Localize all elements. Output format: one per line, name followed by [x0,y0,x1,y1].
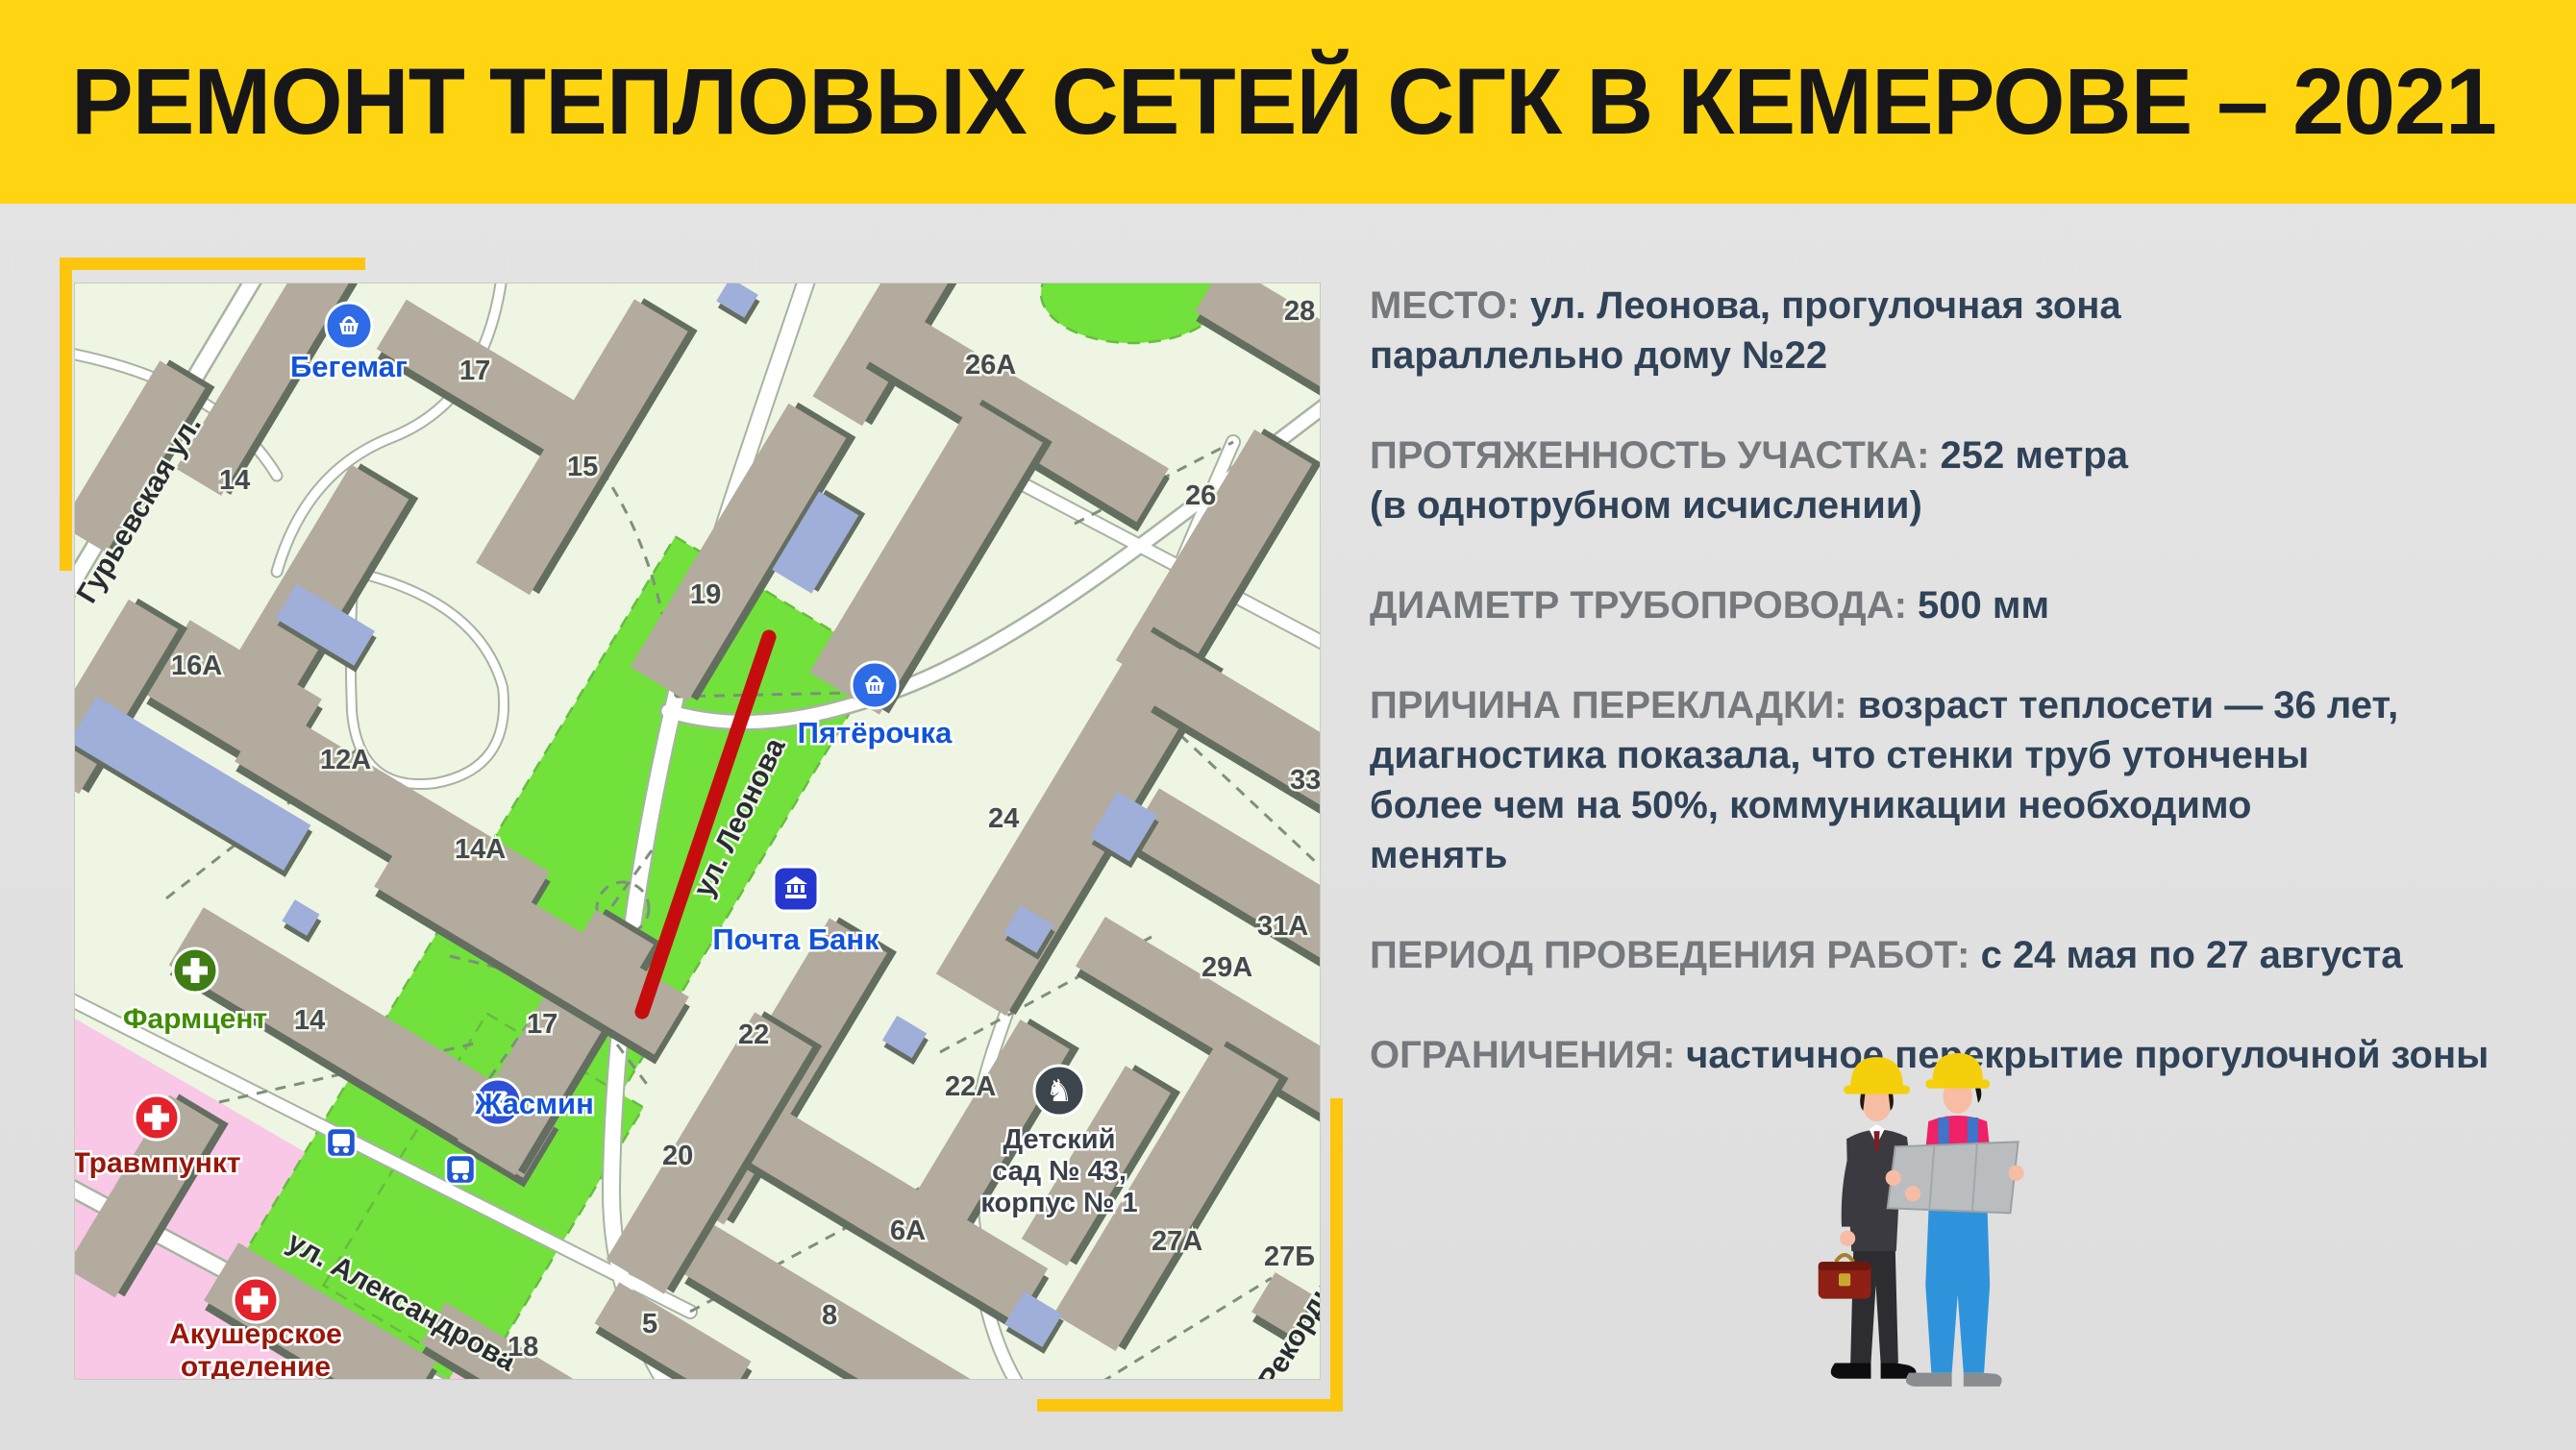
pyaterochka-icon [852,662,898,708]
svg-text:14А: 14А [455,834,506,865]
detsad-icon: ♞ [1034,1066,1084,1116]
poi-label-detsad-3: корпус № 1 [980,1188,1137,1218]
map-canvas: ♞ Бегемаг Пятёрочка Почта Банк Фармцент … [75,283,1320,1379]
svg-text:27Б: 27Б [1264,1241,1315,1272]
svg-text:31А: 31А [1257,911,1308,942]
page-title: РЕМОНТ ТЕПЛОВЫХ СЕТЕЙ СГК В КЕМЕРОВЕ – 2… [0,48,2496,156]
farmcent-icon [173,948,217,993]
title-banner: РЕМОНТ ТЕПЛОВЫХ СЕТЕЙ СГК В КЕМЕРОВЕ – 2… [0,0,2576,204]
worker-figure [1886,1053,2024,1387]
infographic-root: РЕМОНТ ТЕПЛОВЫХ СЕТЕЙ СГК В КЕМЕРОВЕ – 2… [0,0,2576,1450]
poi-label-pochta-bank: Почта Банк [712,922,879,956]
poi-label-akusherskoe-2: отделение [181,1351,331,1379]
begemag-icon [326,303,372,349]
svg-text:18: 18 [508,1332,538,1363]
svg-text:5: 5 [642,1309,657,1339]
poi-label-pyaterochka: Пятёрочка [798,716,953,750]
info-block-length: ПРОТЯЖЕННОСТЬ УЧАСТКА: 252 метра (в одно… [1370,430,2562,530]
svg-text:22: 22 [738,1020,769,1050]
bus-stop-icon [327,1128,356,1157]
svg-text:24: 24 [988,803,1019,834]
map-bracket-topleft-h [60,258,365,270]
svg-text:28: 28 [1284,296,1315,327]
svg-text:14: 14 [294,1005,325,1036]
poi-label-detsad-2: сад № 43, [992,1156,1127,1187]
workers-illustration [1786,1049,2030,1395]
info-block-place: МЕСТО: ул. Леонова, прогулочная зона пар… [1370,281,2562,381]
map-bracket-topleft-v [60,258,72,571]
map-bracket-bottomright-h [1037,1399,1343,1412]
pochta-bank-icon [774,867,818,911]
svg-text:♞: ♞ [1046,1073,1074,1108]
poi-label-farmcent: Фармцент [123,1003,267,1035]
svg-text:6А: 6А [890,1216,926,1246]
akusherskoe-icon [234,1278,278,1322]
travmpunkt-icon [135,1095,179,1140]
poi-label-travmpunkt: Травмпункт [75,1147,241,1179]
info-block-reason: ПРИЧИНА ПЕРЕКЛАДКИ: возраст теплосети — … [1370,680,2562,880]
svg-text:22А: 22А [945,1071,996,1102]
svg-text:20: 20 [662,1141,693,1171]
svg-text:33А: 33А [1290,765,1320,796]
svg-text:16А: 16А [171,651,222,681]
poi-label-akusherskoe-1: Акушерское [169,1318,342,1350]
city-map: ♞ Бегемаг Пятёрочка Почта Банк Фармцент … [75,283,1320,1379]
svg-text:27А: 27А [1152,1226,1202,1257]
svg-text:14: 14 [219,465,250,496]
poi-label-begemag: Бегемаг [290,350,408,383]
bus-stop-icon [446,1155,475,1184]
svg-text:26А: 26А [965,350,1016,381]
svg-text:17: 17 [527,1009,557,1040]
svg-text:29А: 29А [1201,952,1252,983]
engineer-figure [1819,1057,1917,1379]
map-bracket-bottomright-v [1330,1098,1343,1412]
poi-label-detsad-1: Детский [1003,1124,1116,1155]
blueprint-sheet [1888,1142,2019,1213]
svg-text:26: 26 [1185,480,1216,511]
poi-label-zhasmin: Жасмин [474,1087,594,1120]
svg-text:8: 8 [822,1300,837,1331]
svg-text:19: 19 [690,579,721,610]
svg-text:15: 15 [567,452,598,482]
info-block-period: ПЕРИОД ПРОВЕДЕНИЯ РАБОТ: с 24 мая по 27 … [1370,930,2562,980]
info-block-diameter: ДИАМЕТР ТРУБОПРОВОДА: 500 мм [1370,580,2562,630]
info-panel: МЕСТО: ул. Леонова, прогулочная зона пар… [1370,281,2562,1130]
svg-text:12А: 12А [320,745,371,775]
svg-text:17: 17 [459,356,490,386]
